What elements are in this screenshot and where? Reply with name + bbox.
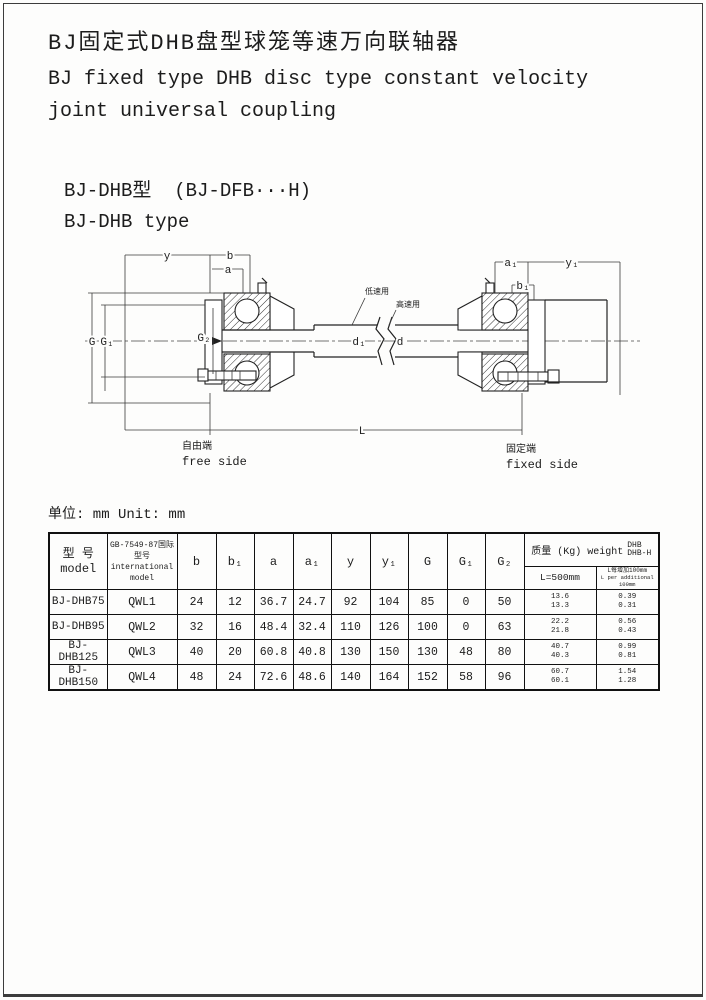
cell-b1: 20 [216,640,254,665]
cell-G1: 0 [447,615,485,640]
free-side-label-cn: 自由端 [182,439,212,453]
cell-weight-l500: 40.7 40.3 [524,640,596,665]
weight-dhbh-value: 40.3 [525,652,596,661]
page-border-frame [3,3,703,997]
cell-y: 140 [331,665,370,691]
cell-y: 110 [331,615,370,640]
weight-dhb-value: 22.2 [525,618,596,627]
right-joint-assembly [458,278,607,391]
weight-dhbh-value: 21.8 [525,627,596,636]
dim-label-y: y [164,251,171,263]
catalog-page: BJ固定式DHB盘型球笼等速万向联轴器 BJ fixed type DHB di… [0,0,706,1000]
cell-weight-l500: 22.2 21.8 [524,615,596,640]
weight-add-dhbh-value: 0.43 [597,627,659,636]
dim-label-G2: G₂ [197,333,210,345]
cell-a1: 48.6 [293,665,331,691]
col-header-b1: b₁ [216,533,254,590]
col-header-a1: a₁ [293,533,331,590]
cell-G1: 0 [447,590,485,615]
weight-title: 质量 (Kg) weight [531,542,623,558]
cell-weight-additional: 0.99 0.81 [596,640,659,665]
table-row: BJ-DHB75 QWL1 24 12 36.7 24.7 92 104 85 … [49,590,659,615]
cell-a: 36.7 [254,590,293,615]
dim-label-G1: G₁ [100,337,113,349]
cell-b: 32 [177,615,216,640]
left-flange-bolt [198,369,256,381]
col-header-model: 型 号 model [49,533,107,590]
dim-label-a: a [225,265,232,277]
cell-a1: 32.4 [293,615,331,640]
weight-dhbh-value: 60.1 [525,677,596,686]
col-header-y1: y₁ [370,533,408,590]
table-row: BJ-DHB150 QWL4 48 24 72.6 48.6 140 164 1… [49,665,659,691]
col-header-international-model: GB-7549-87国际型号 international model [107,533,177,590]
cell-y1: 164 [370,665,408,691]
weight-add-dhb-value: 0.56 [597,618,659,627]
col-header-b: b [177,533,216,590]
dim-label-L: L [359,426,366,438]
dim-label-d1: d₁ [352,337,365,349]
cell-weight-l500: 60.7 60.1 [524,665,596,691]
cell-G2: 80 [485,640,524,665]
page-title-en-line2: joint universal coupling [48,96,588,128]
right-flange-bolt [498,370,559,383]
cell-G1: 58 [447,665,485,691]
col-header-model-en: model [50,562,107,577]
cell-G1: 48 [447,640,485,665]
weight-dhb-value: 60.7 [525,668,596,677]
col-header-G: G [408,533,447,590]
cell-y: 92 [331,590,370,615]
fixed-side-label-en: fixed side [506,458,578,472]
page-title-en-line1: BJ fixed type DHB disc type constant vel… [48,64,588,96]
grease-nipple-right [486,283,494,293]
cell-model: BJ-DHB150 [49,665,107,691]
cell-model: BJ-DHB95 [49,615,107,640]
weight-additional-cn: L每增加100mm [597,567,659,574]
weight-add-dhb-value: 1.54 [597,668,659,677]
col-header-weight-additional: L每增加100mm L per additional 100mm [596,566,659,589]
model-type-block: BJ-DHB型 (BJ-DFB···H) BJ-DHB type [64,176,311,238]
cell-G: 100 [408,615,447,640]
col-header-intl-cn: GB-7549-87国际型号 [108,540,177,562]
weight-add-dhb-value: 0.99 [597,643,659,652]
cell-weight-additional: 1.54 1.28 [596,665,659,691]
high-speed-callout: 高速用 [396,299,420,310]
cell-intl: QWL1 [107,590,177,615]
model-type-en: BJ-DHB type [64,207,311,238]
col-header-weight: 质量 (Kg) weight DHB DHB-H [524,533,659,566]
cell-b: 40 [177,640,216,665]
weight-add-dhb-value: 0.39 [597,593,659,602]
col-header-G2: G₂ [485,533,524,590]
cell-y: 130 [331,640,370,665]
coupling-drawing-svg: y b a G G₁ G₂ a₁ b₁ y₁ d₁ d L 低速用 高速用 自由… [62,243,647,478]
cell-a: 72.6 [254,665,293,691]
col-header-y: y [331,533,370,590]
cell-b1: 16 [216,615,254,640]
weight-dhb-value: 13.6 [525,593,596,602]
left-joint-assembly [198,278,294,391]
coupling-diagram: y b a G G₁ G₂ a₁ b₁ y₁ d₁ d L 低速用 高速用 自由… [62,243,647,478]
dim-label-d: d [397,337,404,349]
cell-b: 24 [177,590,216,615]
low-speed-callout: 低速用 [365,286,389,297]
cell-G2: 50 [485,590,524,615]
free-side-label-en: free side [182,455,247,469]
high-speed-leader [389,310,396,325]
cell-b: 48 [177,665,216,691]
table-row: BJ-DHB125 QWL3 40 20 60.8 40.8 130 150 1… [49,640,659,665]
cell-a: 60.8 [254,640,293,665]
cell-G: 85 [408,590,447,615]
dim-label-G: G [89,337,96,349]
cell-a: 48.4 [254,615,293,640]
col-header-G1: G₁ [447,533,485,590]
cell-b1: 12 [216,590,254,615]
cell-G2: 96 [485,665,524,691]
page-title-cn: BJ固定式DHB盘型球笼等速万向联轴器 [48,24,588,56]
cell-a1: 24.7 [293,590,331,615]
weight-add-dhbh-value: 0.31 [597,602,659,611]
grease-nipple-left [258,283,266,293]
dim-label-y1: y₁ [565,258,578,270]
cell-weight-additional: 0.39 0.31 [596,590,659,615]
cell-model: BJ-DHB125 [49,640,107,665]
dim-label-b1: b₁ [516,281,529,293]
fixed-side-label-cn: 固定端 [506,442,536,456]
cell-a1: 40.8 [293,640,331,665]
dim-label-b: b [227,251,234,263]
cell-model: BJ-DHB75 [49,590,107,615]
cell-intl: QWL2 [107,615,177,640]
low-speed-leader [352,298,365,325]
table-row: BJ-DHB95 QWL2 32 16 48.4 32.4 110 126 10… [49,615,659,640]
model-type-cn: BJ-DHB型 (BJ-DFB···H) [64,176,311,207]
cell-G: 130 [408,640,447,665]
cell-y1: 150 [370,640,408,665]
weight-additional-en: L per additional 100mm [597,574,659,588]
cell-intl: QWL4 [107,665,177,691]
dim-label-a1: a₁ [504,258,517,270]
cell-weight-additional: 0.56 0.43 [596,615,659,640]
col-header-a: a [254,533,293,590]
cell-y1: 126 [370,615,408,640]
cell-b1: 24 [216,665,254,691]
cell-G2: 63 [485,615,524,640]
cell-intl: QWL3 [107,640,177,665]
weight-add-dhbh-value: 1.28 [597,677,659,686]
weight-add-dhbh-value: 0.81 [597,652,659,661]
title-block: BJ固定式DHB盘型球笼等速万向联轴器 BJ fixed type DHB di… [48,24,588,128]
col-header-intl-en: international model [108,562,177,584]
col-header-model-cn: 型 号 [50,547,107,562]
cell-y1: 104 [370,590,408,615]
weight-dhb-value: 40.7 [525,643,596,652]
col-header-weight-l500: L=500mm [524,566,596,589]
unit-note: 单位: mm Unit: mm [48,503,185,523]
cell-weight-l500: 13.6 13.3 [524,590,596,615]
dimension-table: 型 号 model GB-7549-87国际型号 international m… [48,532,660,691]
weight-type-dhbh: DHB-H [627,550,651,558]
cell-G: 152 [408,665,447,691]
weight-dhbh-value: 13.3 [525,602,596,611]
